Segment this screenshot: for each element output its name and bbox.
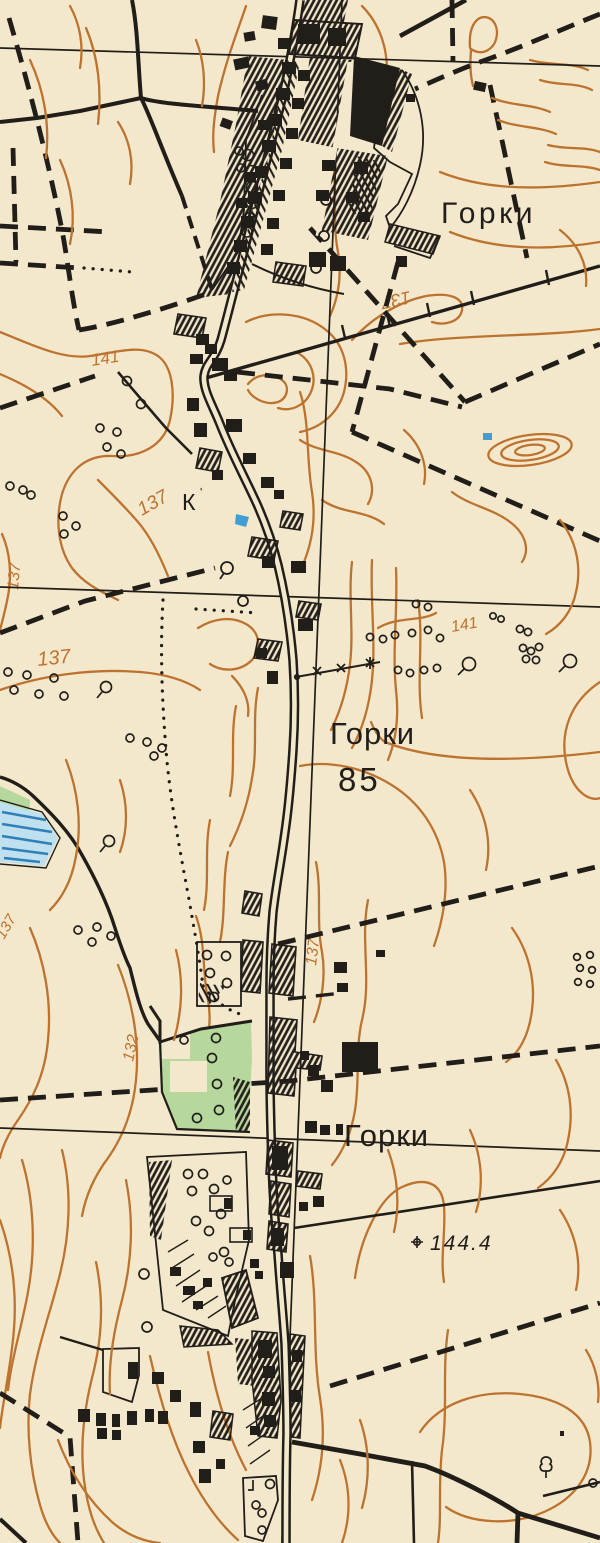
svg-text:Горки: Горки — [344, 1118, 429, 1153]
svg-text:85: 85 — [338, 761, 381, 798]
svg-text:137: 137 — [36, 646, 72, 671]
svg-text:144.4: 144.4 — [430, 1232, 493, 1255]
svg-text:Горки: Горки — [441, 197, 536, 230]
svg-text:К: К — [182, 489, 196, 515]
svg-text:137: 137 — [5, 561, 24, 590]
svg-text:ʹ: ʹ — [200, 485, 202, 499]
svg-text:Горки: Горки — [330, 716, 415, 751]
